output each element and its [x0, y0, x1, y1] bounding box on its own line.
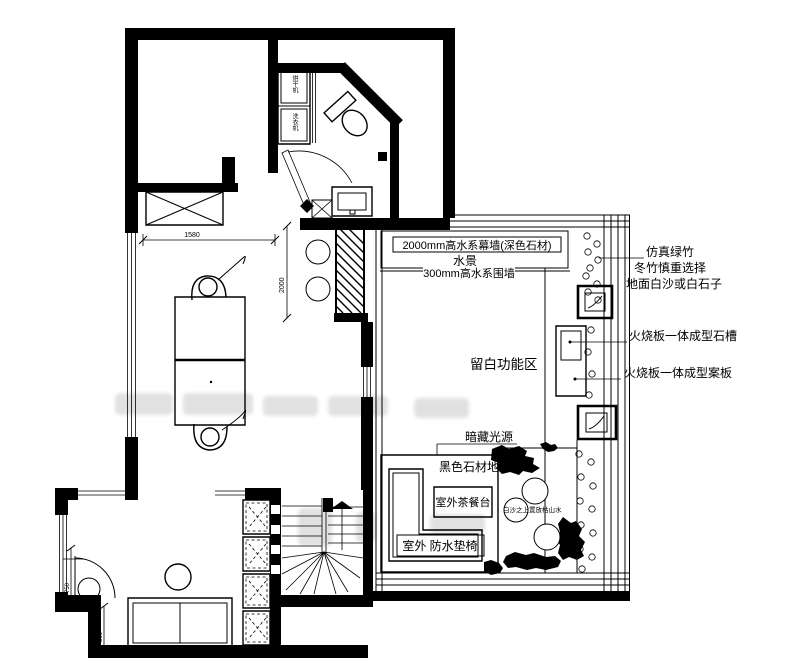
dim-800-label: 800 — [98, 631, 104, 642]
wardrobe-cell — [243, 611, 270, 645]
dim-852-label: 852 — [81, 597, 90, 603]
floor-plan-canvas: 1580 2000 烘干机 洗衣机 — [0, 0, 789, 669]
stepping-stone — [534, 524, 560, 550]
karesansui-note-label: 白沙之上置放枯山水 — [503, 505, 562, 514]
hidden-light-label: 暗藏光源 — [465, 429, 513, 444]
bamboo-note-label: 冬竹慎重选择 — [634, 260, 706, 275]
uplight-icon — [578, 406, 616, 439]
floor-plan-drawing: 1580 2000 烘干机 洗衣机 — [0, 0, 789, 669]
water-wall-label: 2000mm高水系幕墙(深色石材) — [402, 238, 551, 252]
wardrobe-cell — [243, 574, 270, 608]
annotation-fake-bamboo: 仿真绿竹 — [599, 244, 694, 259]
person-icon — [192, 256, 246, 300]
tea-table-label: 室外茶餐台 — [436, 495, 491, 509]
waterproof-seat-label: 室外 防水垫椅 — [402, 538, 477, 553]
wardrobe — [243, 500, 270, 645]
bathroom-door — [282, 150, 352, 213]
bamboo-dots — [576, 233, 601, 572]
water-scene-label: 水景 — [453, 254, 477, 268]
water-fence-label: 300mm高水系围墙 — [423, 266, 515, 280]
dim-2000-label: 2000 — [279, 277, 286, 293]
dim-1580-label: 1580 — [184, 232, 200, 239]
rock-garden: 白沙之上置放枯山水 — [484, 442, 585, 575]
bathroom-sink — [332, 187, 372, 216]
stair-arrow-icon — [331, 501, 353, 509]
fake-bamboo-label: 仿真绿竹 — [646, 244, 694, 259]
ground-note-label: 地面白沙或白石子 — [626, 276, 722, 291]
person-icon — [194, 410, 246, 450]
stone-sink-label: 火烧板一体成型石槽 — [629, 329, 737, 343]
stool-icon — [306, 240, 330, 264]
dimension-1580: 1580 — [139, 232, 279, 246]
window-left-bedroom — [60, 515, 67, 592]
annotation-stone-board: 火烧板一体成型案板 — [574, 365, 733, 381]
wall-vent — [378, 152, 387, 161]
dryer-label: 烘干机 — [291, 74, 298, 94]
stone-board-label: 火烧板一体成型案板 — [624, 365, 732, 380]
water-feature: 2000mm高水系幕墙(深色石材) 水景 300mm高水系围墙 — [380, 231, 570, 280]
dimension-2000: 2000 — [279, 222, 291, 322]
appliance-stack: 烘干机 洗衣机 — [278, 68, 316, 144]
floor-drain-box — [312, 200, 332, 218]
round-table — [165, 564, 191, 590]
washer-label: 洗衣机 — [291, 112, 298, 132]
water-wall-hatch — [336, 225, 364, 314]
wall-openings — [78, 367, 371, 495]
wardrobe-cell — [243, 537, 270, 571]
crossed-shaft — [146, 192, 223, 225]
watermark — [115, 393, 485, 546]
sofa — [128, 598, 232, 648]
wardrobe-cell — [243, 500, 270, 534]
stool-icon — [306, 277, 330, 301]
dim-750-label: 750 — [65, 582, 71, 593]
blank-zone-label: 留白功能区 — [470, 357, 538, 372]
stepping-stone — [522, 478, 548, 504]
stone-counter — [556, 326, 586, 396]
